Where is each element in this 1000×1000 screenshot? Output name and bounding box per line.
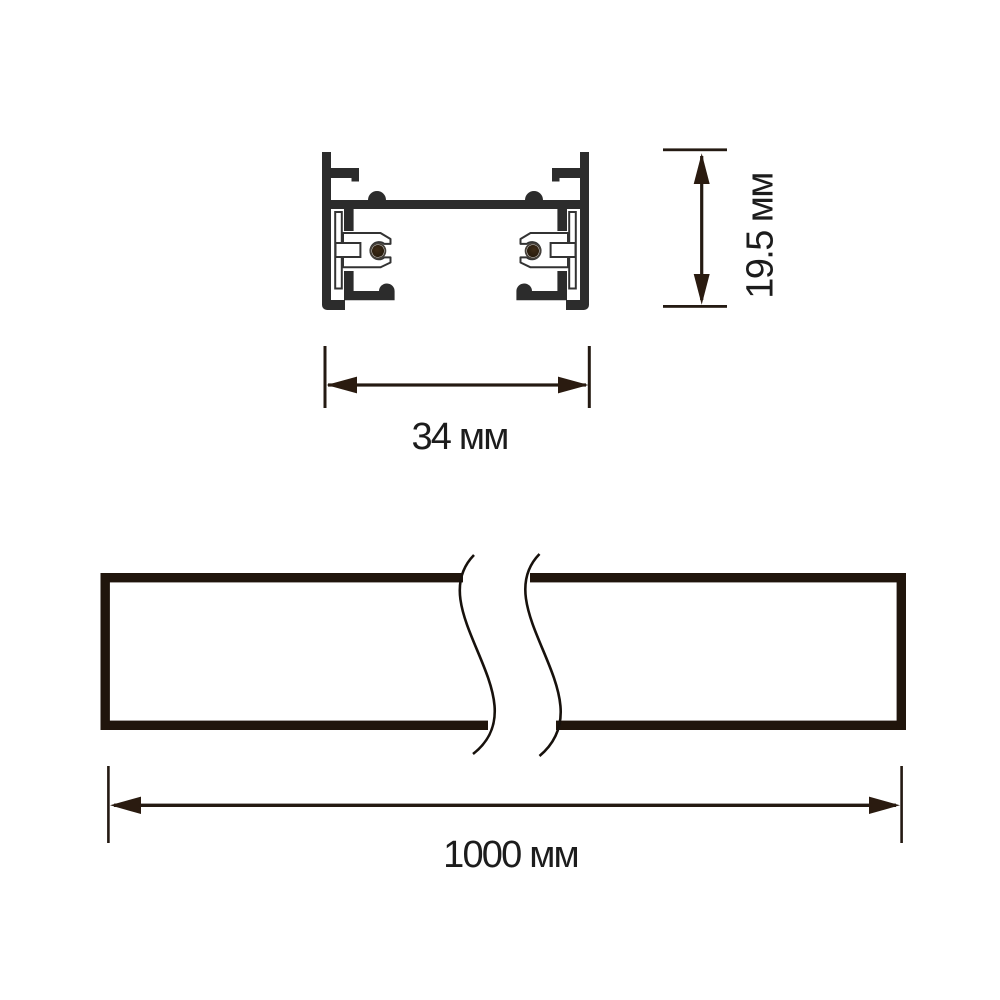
svg-text:34 мм: 34 мм [411,416,507,458]
svg-text:1000 мм: 1000 мм [443,834,578,876]
svg-text:19.5 мм: 19.5 мм [740,173,782,299]
